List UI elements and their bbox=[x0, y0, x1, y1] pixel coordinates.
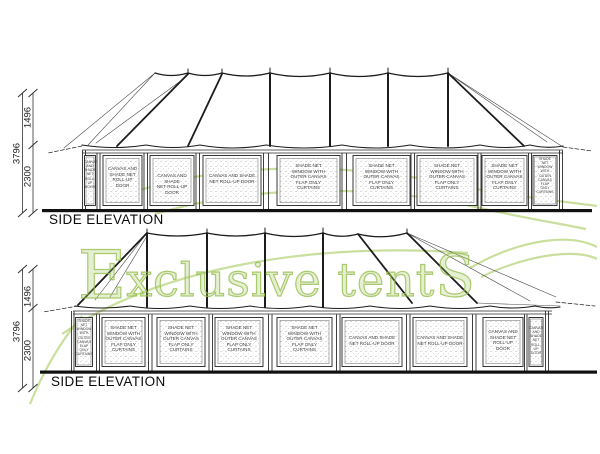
top-elevation-roof bbox=[48, 68, 592, 153]
drawing-sheet: E xclusive tent S 1496 3796 2300 1496 37… bbox=[0, 0, 600, 454]
panel-label: CANVAS AND SHADE NET ROLL-UP DOOR bbox=[150, 173, 194, 195]
top-elevation-title: SIDE ELEVATION bbox=[49, 212, 164, 227]
right-guy-dashed bbox=[563, 147, 592, 151]
pole-tips bbox=[188, 68, 448, 74]
panel-label: SHADE NET WINDOW WITH OUTER CANVAS FLAP … bbox=[482, 163, 527, 191]
right-hip-seam bbox=[448, 73, 524, 146]
pole-tips bbox=[147, 228, 407, 234]
panel-label: SHADE NET WINDOW WITH OUTER CANVAS FLAP … bbox=[215, 325, 263, 353]
center-poles bbox=[147, 233, 323, 307]
dim-label-overall-bottom: 3796 bbox=[12, 312, 23, 352]
panel-label: SHADE NET WINDOW WITH OUTER CANVAS FLAP … bbox=[353, 163, 410, 191]
dim-label-lower-top: 2300 bbox=[23, 157, 34, 197]
panel-label: SHADE NET WINDOW WITH OUTER CANVAS FLAP … bbox=[277, 163, 340, 191]
panel-label: SHADE NET WINDOW WITH OUTER CANVAS FLAP … bbox=[417, 163, 477, 191]
eave-scallop bbox=[82, 145, 563, 148]
ridge-line bbox=[147, 233, 407, 237]
left-guy-dashed bbox=[43, 306, 78, 312]
dim-label-overall-top: 3796 bbox=[12, 134, 23, 174]
panel-label: SHADE NET WINDOW WITH OUTER CANVAS FLAP … bbox=[533, 157, 557, 194]
right-fold-lines bbox=[448, 73, 563, 147]
panel-label: SHADE NET WINDOW WITH OUTER CANVAS FLAP … bbox=[102, 325, 145, 353]
dim-label-lower-bottom: 2300 bbox=[23, 331, 34, 371]
dim-label-upper-top: 1496 bbox=[23, 98, 34, 138]
panel-label: SHADE NET WINDOW WITH OUTER CANVAS FLAP … bbox=[277, 325, 332, 353]
panel-label: CANVAS AND SHADE NET ROLL-UP DOOR bbox=[84, 160, 96, 189]
bottom-elevation-title: SIDE ELEVATION bbox=[51, 374, 166, 389]
right-fold-lines bbox=[407, 233, 560, 306]
panel-label: SHADE NET WINDOW WITH OUTER CANVAS FLAP … bbox=[75, 319, 93, 356]
center-poles bbox=[270, 73, 448, 146]
right-guy-dashed bbox=[556, 302, 595, 306]
panel-label: CANVAS AND SHADE NET ROLL-UP DOOR bbox=[529, 326, 543, 355]
top-plate-rails bbox=[82, 150, 563, 153]
left-fold-lines bbox=[95, 233, 147, 300]
left-hip-seams bbox=[117, 74, 222, 146]
dim-label-upper-bottom: 1496 bbox=[23, 277, 34, 317]
panel-label: SHADE NET WINDOW WITH OUTER CANVAS FLAP … bbox=[157, 325, 205, 353]
right-hip-seams bbox=[358, 233, 477, 303]
panel-label: CANVAS AND SHADE NET ROLL-UP DOOR bbox=[342, 335, 402, 346]
panel-label: CANVAS AND SHADE NET ROLL-UP DOOR bbox=[203, 173, 261, 184]
top-plate-rails bbox=[73, 311, 552, 314]
ridge-line bbox=[155, 73, 448, 77]
panel-label: CANVAS AND SHADE NET ROLL-UP DOOR bbox=[413, 335, 467, 346]
panel-label: CANVAS AND SHADE NET ROLL-UP DOOR bbox=[103, 166, 142, 188]
panel-label: CANVAS AND SHADE NET ROLL-UP DOOR bbox=[483, 329, 523, 351]
